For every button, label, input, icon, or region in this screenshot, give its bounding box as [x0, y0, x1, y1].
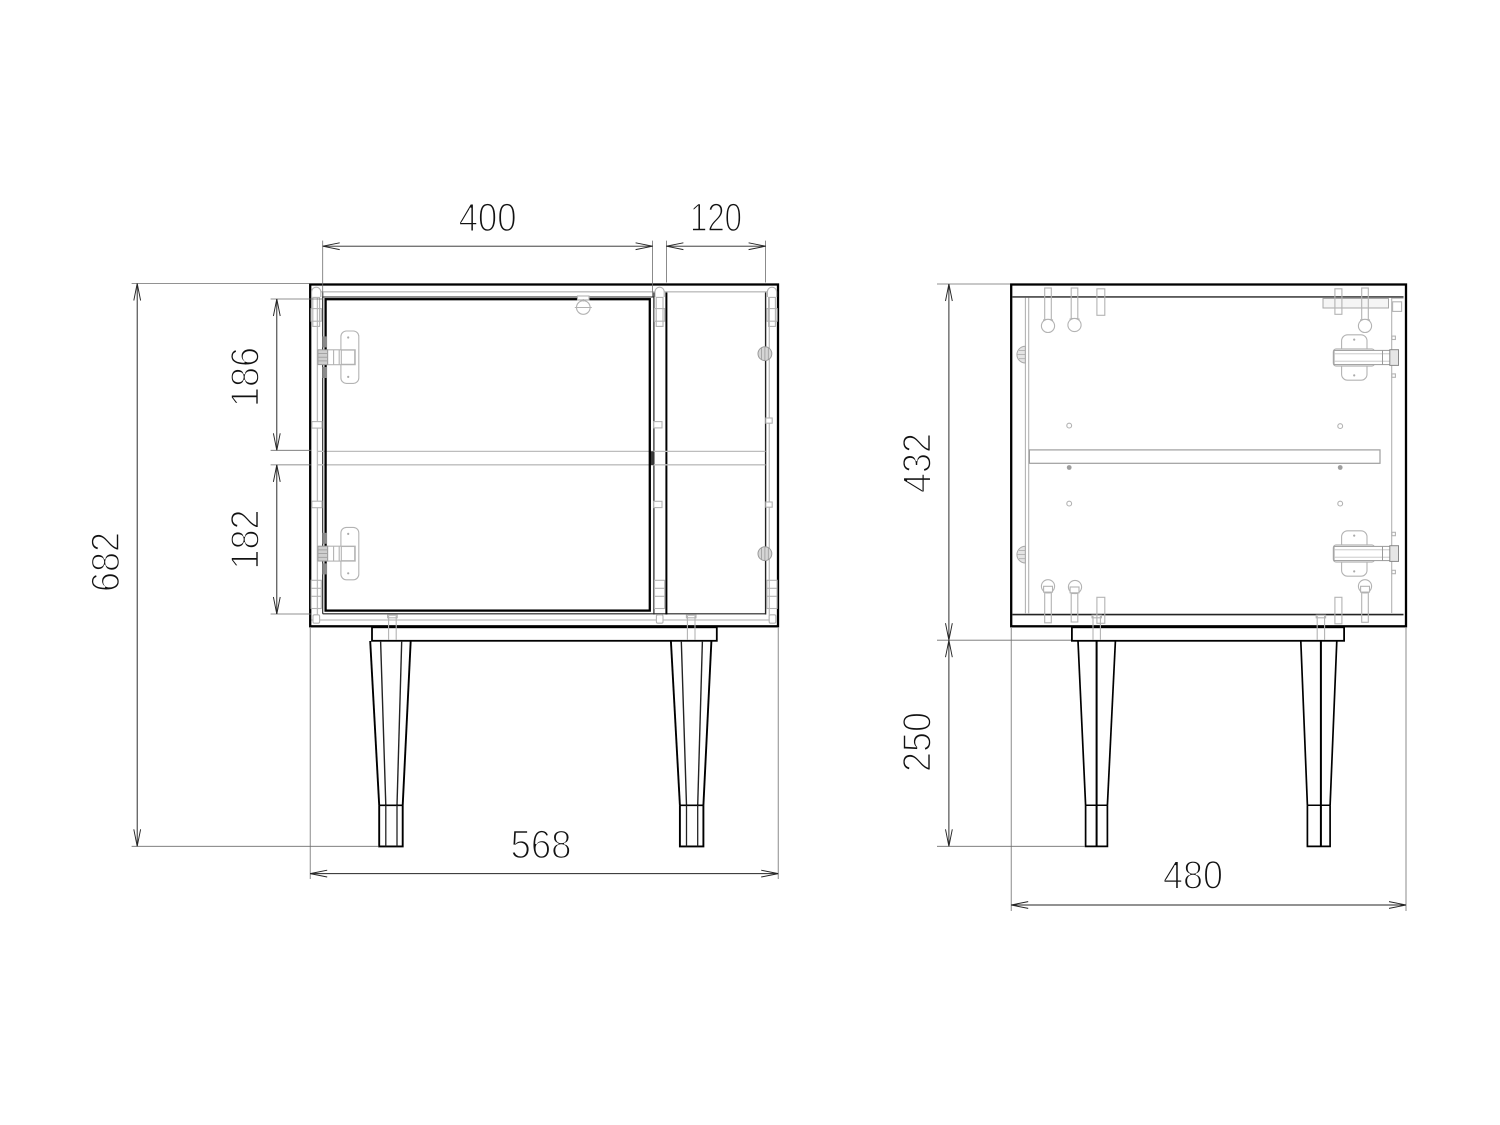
svg-text:682: 682 [84, 532, 128, 592]
svg-text:480: 480 [1163, 854, 1223, 898]
svg-text:120: 120 [690, 196, 742, 240]
svg-text:432: 432 [896, 433, 940, 493]
svg-text:568: 568 [511, 823, 572, 867]
svg-text:400: 400 [459, 196, 517, 240]
svg-text:250: 250 [896, 712, 940, 772]
svg-text:182: 182 [224, 510, 268, 570]
svg-text:186: 186 [224, 347, 268, 407]
